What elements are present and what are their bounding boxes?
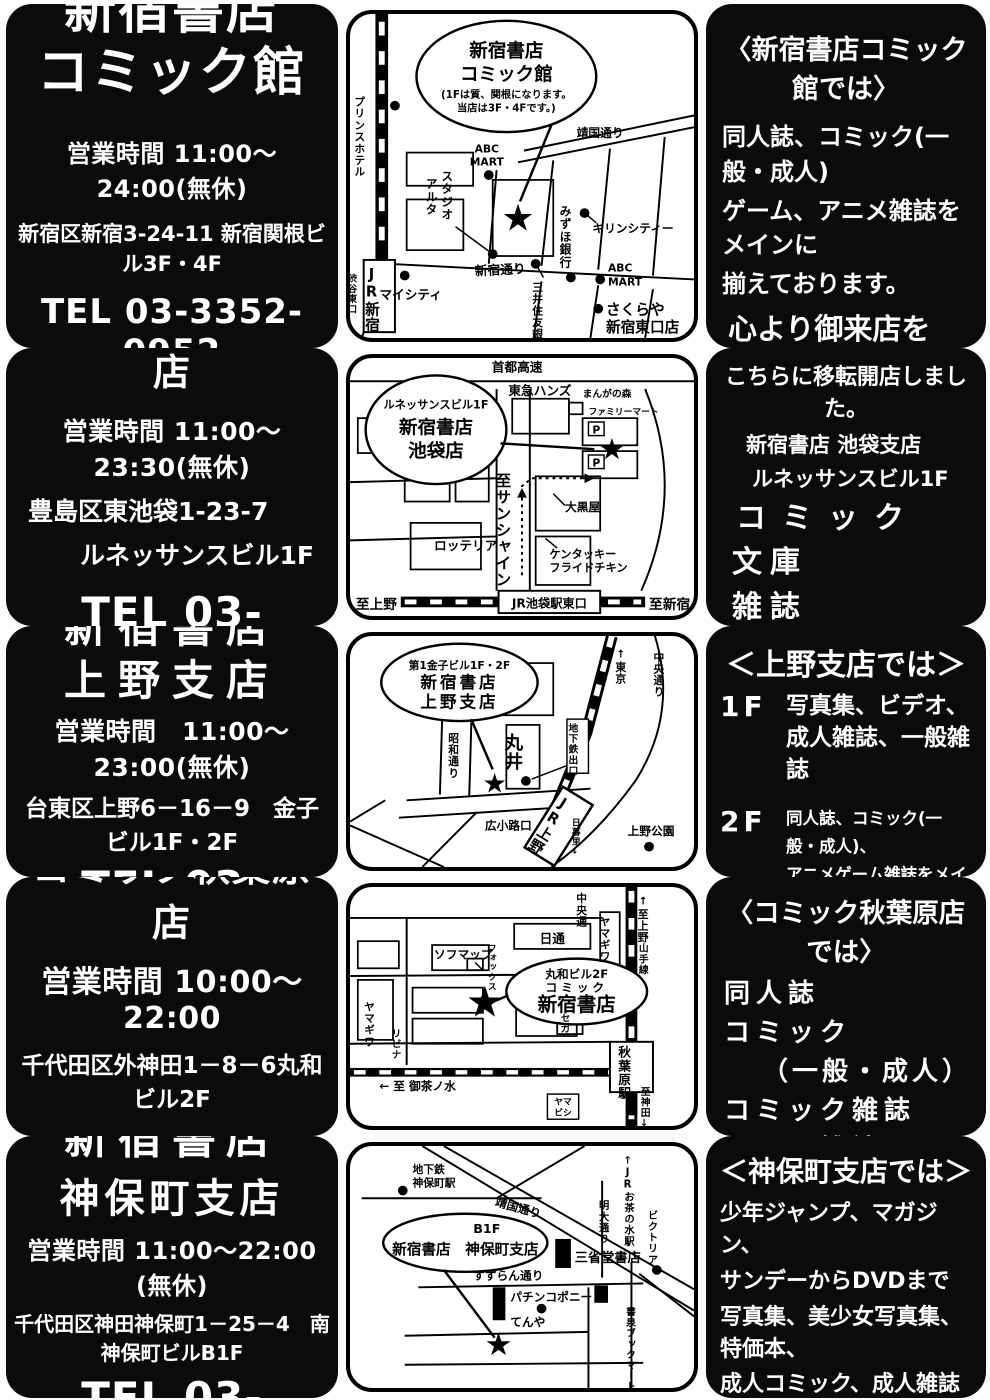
map-label-shibuya-east-exit: 渋谷東口 — [350, 273, 357, 315]
poi-dot — [595, 275, 605, 285]
store-tel: TEL03－5294－3222 — [14, 1124, 330, 1136]
map-panel-jimbocho: 地下鉄 神保町駅 靖国通り ↑JRお茶の水駅 明大通り ビクトリア B1F 新宿… — [338, 1136, 706, 1398]
poi-dot — [398, 1186, 408, 1196]
shinjuku-map: 新宿書店 コミック館 (1Fは質、関根になります。 当店は3F・4Fです。) ★… — [350, 14, 694, 338]
notice-line: ルネッサンスビル1F — [718, 464, 974, 494]
notice-line: 写真集、美少女写真集、特価本、 — [720, 1302, 972, 1366]
store-card-ueno: 1F→写真集大充実! 2F→コミックコーナー! 新宿書店 上野支店 営業時間 1… — [6, 626, 338, 877]
floor-description: 写真集、ビデオ、 成人雑誌、一般雑誌 — [786, 690, 972, 787]
map-label-sakuraya: さくらや — [606, 302, 665, 319]
station-stub — [628, 1092, 638, 1115]
map-label-abc-mart: ABC — [475, 143, 500, 156]
map-label-sega: セガ — [558, 1012, 570, 1034]
railway — [375, 14, 388, 260]
map-label-to-nippori: 日暮里↓ — [570, 817, 581, 857]
pointer-line — [456, 227, 489, 251]
map-label-showa-dori: 昭和通り — [447, 733, 460, 779]
jr-ueno-station: JR上野 — [524, 787, 593, 867]
balloon-line: (1Fは質、関根になります。 — [441, 88, 572, 101]
store-name: 新宿書店 池袋支店 — [14, 348, 330, 396]
notice-heading: 〈新宿書店コミック館では〉 — [722, 28, 970, 106]
store-name-line2: 上野支店 — [14, 655, 330, 708]
map-label-familymart: ファミリーマート — [588, 406, 658, 417]
map-label-jr-shinjuku: JR新宿 — [363, 266, 380, 333]
map-label-sofmap: ソフマップ — [434, 948, 493, 962]
poi-dot — [593, 304, 603, 314]
store-name: 新宿書店 コミック秋葉原店 — [14, 877, 330, 947]
map-label-shinjuku-dori: 新宿通り — [474, 261, 526, 279]
notice-line: 少年ジャンプ、マガジン、 — [720, 1198, 972, 1262]
store-address: 千代田区神田神保町1－25－4 南神保町ビルB1F — [14, 1308, 330, 1366]
floor-label: 1F — [720, 690, 776, 723]
store-location-star-icon: ★ — [501, 197, 534, 240]
map-panel-shinjuku: 新宿書店 コミック館 (1Fは質、関根になります。 当店は3F・4Fです。) ★… — [338, 4, 706, 348]
map-label-studio-alta: スタジオ — [440, 170, 454, 221]
map-label-nittsu: 日通 — [540, 931, 566, 946]
poi-dot — [566, 273, 576, 283]
pointer-line — [553, 494, 565, 506]
map-label-victoria: ビクトリア — [645, 1209, 657, 1266]
map-label-jr-ochanomizu: ↑JRお茶の水駅 — [622, 1156, 635, 1247]
floor-2-row: 2F 同人誌、コミック(一般・成人)、 アニメゲーム雑誌をメインに置いています。 — [720, 805, 972, 877]
notice-card-comic-kan: 〈新宿書店コミック館では〉 同人誌、コミック(一般・成人) ゲーム、アニメ雑誌を… — [706, 4, 986, 348]
balloon-line: 当店は3F・4Fです。) — [457, 102, 556, 115]
store-tel: TEL 03-3839-5340 — [14, 862, 330, 877]
ikebukuro-map: 首都高速 東急ハンズ まんがの森 ファミリーマート P P ★ ルネッサンスビル… — [350, 358, 694, 616]
poi-dot — [488, 249, 498, 259]
pointer-line — [475, 962, 483, 970]
map-label-kfc: フライドチキン — [549, 561, 627, 574]
store-hours: 営業時間 11:00～23:00(無休) — [14, 712, 330, 784]
store-address: ルネッサンスビル1F — [14, 536, 330, 572]
store-card-ikebukuro: 新宿書店 池袋支店 営業時間 11:00～23:30(無休) 豊島区東池袋1-2… — [6, 348, 338, 626]
store-location-star-icon: ★ — [482, 769, 507, 800]
roads — [362, 1146, 694, 1388]
map-label-manga-no-mori: まんがの森 — [583, 387, 632, 400]
map-label-ueno-park: 上野公園 — [628, 824, 675, 838]
notice-card-akihabara: 〈コミック秋葉原店では〉 同人誌 コミック （一般・成人） コミック雑誌 アニメ… — [706, 877, 986, 1136]
store-hours: 営業時間 11:00～22:00 (無休) — [14, 1231, 330, 1301]
map-label-mizuho-bank: みずほ銀行 — [558, 205, 572, 268]
notice-heading: ＜上野支店では＞ — [720, 640, 972, 684]
map-label-chuo-dori: 中央通 — [575, 892, 588, 927]
store-tel: TEL 03-3352-0952 — [14, 292, 330, 348]
notice-heading: 〈コミック秋葉原店では〉 — [720, 891, 972, 969]
balloon-line: ルネッサンスビル1F — [383, 397, 488, 411]
map-panel-akihabara: 中央通 ヤマギワ ↑至上野 山手線 日通 ソフマップ フォックス 丸和ビル2F … — [338, 877, 706, 1136]
floor-line: 同人誌、コミック(一般・成人)、 — [786, 805, 972, 861]
notice-line: 成人コミック、成人雑誌を — [720, 1369, 972, 1398]
map-label-kirin-city: キリンシティー — [592, 222, 673, 236]
store-address: 新宿区新宿3-24-11 新宿関根ビル3F・4F — [14, 218, 330, 278]
notice-heading: ＜神保町支店では＞ — [720, 1150, 972, 1190]
map-label-livina: リビナ — [389, 1028, 401, 1060]
map-panel-ikebukuro: 首都高速 東急ハンズ まんがの森 ファミリーマート P P ★ ルネッサンスビル… — [338, 348, 706, 626]
store-hours: 営業時間 11:00～24:00(無休) — [14, 134, 330, 204]
map-label-to-ochanomizu: ← 至 御茶ノ水 — [379, 1079, 456, 1093]
poi-dot — [652, 1265, 662, 1275]
notice-item: 同人誌 — [720, 977, 972, 1012]
map-label-abc-mart: MART — [470, 155, 505, 168]
store-tel: TEL 03-5391-6231 — [14, 588, 330, 626]
map-label-sakuraya: 新宿東口店 — [606, 318, 680, 336]
store-hours: 営業時間 10:00～22:00 — [14, 957, 330, 1036]
balloon-line: 第1金子ビル1F・2F — [409, 659, 511, 672]
map-label-shuto-expressway: 首都高速 — [492, 360, 543, 375]
floor-label: 2F — [720, 805, 776, 838]
map-label-mitsui-bank: 三井住友銀行 — [531, 281, 544, 338]
map-label-to-shinjuku: 至新宿 — [649, 596, 690, 613]
map-label-tenya: てんや — [510, 1315, 545, 1329]
store-card-comic-kan: 新宿書店 コミック館 営業時間 11:00～24:00(無休) 新宿区新宿3-2… — [6, 4, 338, 348]
store-card-akihabara: 新宿書店 コミック秋葉原店 営業時間 10:00～22:00 千代田区外神田1－… — [6, 877, 338, 1136]
map-label-yamanote-line: 山手線 — [637, 942, 649, 975]
balloon-pointer — [471, 719, 493, 769]
map-label-yamabishi: ビシ — [554, 1106, 572, 1118]
notice-card-jimbocho: ＜神保町支店では＞ 少年ジャンプ、マガジン、 サンデーからDVDまで 写真集、美… — [706, 1136, 986, 1398]
building-solid — [594, 1285, 608, 1302]
map-label-shosen-bookmart: 書泉ブックマート — [624, 1305, 637, 1388]
map-label-abc-mart-2: ABC — [608, 262, 633, 275]
store-tel: TEL 03-5259-3525 — [14, 1373, 330, 1398]
store-name: 新宿書店 神保町支店 — [14, 1136, 330, 1224]
map-label-yamagiwa: ヤマギワ — [599, 916, 612, 962]
balloon-pointer — [520, 125, 551, 201]
map-label-daikokuya: 大黒屋 — [565, 500, 600, 514]
akihabara-map: 中央通 ヤマギワ ↑至上野 山手線 日通 ソフマップ フォックス 丸和ビル2F … — [350, 887, 694, 1126]
map-label-tokyu-hands: 東急ハンズ — [508, 383, 572, 398]
ad-page: 新宿書店 コミック館 営業時間 11:00～24:00(無休) 新宿区新宿3-2… — [0, 0, 990, 1400]
map-label-to-sunshine: 至サンシャイン — [493, 472, 511, 588]
map-label-marui: 丸井 — [502, 733, 524, 772]
store-name-line2: コミック秋葉原店 — [14, 877, 330, 947]
balloon-line: 新宿書店 — [399, 417, 473, 439]
store-name-line1: 新宿書店 — [14, 1136, 330, 1166]
notice-line: ゲーム、アニメ雑誌をメインに — [722, 194, 970, 264]
map-label-sanseido: 三省堂書店 — [575, 1249, 641, 1266]
map-label-yamabishi: ヤマ — [554, 1097, 572, 1108]
map-label-yamagiwa-2: ヤマギワ — [363, 1001, 376, 1047]
balloon-line: 上野支店 — [420, 692, 498, 712]
notice-item: 文庫 — [718, 543, 974, 584]
map-label-kfc: ケンタッキー — [549, 547, 616, 561]
notice-item: （一般・成人） — [720, 1055, 972, 1090]
balloon-pointer — [501, 443, 595, 449]
store-location-star-icon: ★ — [599, 432, 625, 466]
store-card-jimbocho: 書泉ブックマート裏 新宿書店 神保町支店 営業時間 11:00～22:00 (無… — [6, 1136, 338, 1398]
poi-dot — [484, 170, 494, 180]
notice-item: コミック — [718, 499, 974, 540]
floor-1-row: 1F 写真集、ビデオ、 成人雑誌、一般雑誌 — [720, 690, 972, 787]
poi-dot — [390, 101, 400, 111]
balloon-line: B1F — [473, 1221, 500, 1236]
poi-dot — [537, 1304, 547, 1314]
balloon-line: コミック館 — [460, 63, 553, 85]
store-location-star-icon: ★ — [466, 978, 505, 1028]
floor-line: 写真集、ビデオ、 — [786, 690, 972, 722]
notice-closing: 心より御来店を — [722, 306, 970, 348]
store-name: 新宿書店 上野支店 — [14, 626, 330, 707]
poi-dot — [400, 271, 410, 281]
notice-card-ikebukuro: こちらに移転開店しました。 新宿書店 池袋支店 ルネッサンスビル1F コミック … — [706, 348, 986, 626]
balloon-line: 新宿書店 神保町支店 — [392, 1240, 539, 1258]
map-label-subway-exit: 地下鉄出口 — [566, 722, 578, 777]
notice-line: 新宿書店 池袋支店 — [718, 430, 974, 460]
balloon-line: 新宿書店 — [420, 672, 498, 692]
notice-line: こちらに移転開店しました。 — [718, 362, 974, 426]
map-label-lotteria: ロッテリア — [434, 538, 498, 553]
store-address: 豊島区東池袋1-23-7 — [14, 492, 330, 528]
notice-item: コミック雑誌 — [720, 1094, 972, 1129]
store-name: 新宿書店 コミック館 — [14, 4, 330, 104]
map-label-pachinko-pony: パチンコポニー — [510, 1290, 592, 1304]
store-name-line1: 新宿書店 — [14, 4, 330, 42]
ueno-map: 第1金子ビル1F・2F 新宿書店 上野支店 ★ ↑東京 中央通り 地下鉄出口 丸… — [350, 636, 694, 867]
map-label-mycity: マイシティ — [379, 287, 442, 302]
notice-item: コミック — [720, 1016, 972, 1051]
pointer-line — [532, 766, 567, 780]
balloon-line: 新宿書店 — [538, 993, 616, 1016]
notice-line: 揃えております。 — [722, 267, 970, 302]
store-name-line2: 神保町支店 — [14, 1166, 330, 1224]
notice-line: サンデーからDVDまで — [720, 1266, 972, 1298]
map-label-meidai-dori: 明大通り — [597, 1200, 609, 1245]
balloon-line: 新宿書店 — [469, 40, 543, 62]
floor-line: 成人雑誌、一般雑誌 — [786, 722, 972, 786]
railway-horizontal — [350, 1068, 626, 1077]
store-location-star-icon: ★ — [485, 1327, 513, 1363]
poi-dot — [521, 776, 531, 786]
notice-card-ueno: ＜上野支店では＞ 1F 写真集、ビデオ、 成人雑誌、一般雑誌 2F 同人誌、コミ… — [706, 626, 986, 877]
map-label-abc-mart-2: MART — [608, 275, 643, 288]
store-name-line1: 新宿書店 — [14, 626, 330, 655]
map-label-subway-jimbocho: 地下鉄 — [413, 1163, 446, 1176]
map-label-yasukuni-dori: 靖国通り — [577, 126, 624, 140]
map-label-akihabara-station: 秋葉原駅 — [616, 1045, 631, 1101]
map-label-to-kanda: 至神田↓ — [639, 1086, 651, 1126]
jimbocho-map: 地下鉄 神保町駅 靖国通り ↑JRお茶の水駅 明大通り ビクトリア B1F 新宿… — [350, 1146, 694, 1388]
map-panel-ueno: 第1金子ビル1F・2F 新宿書店 上野支店 ★ ↑東京 中央通り 地下鉄出口 丸… — [338, 626, 706, 877]
notice-item: 雑誌 — [718, 588, 974, 626]
store-address: 台東区上野6－16－9 金子ビル1F・2F — [14, 789, 330, 857]
floor-description: 同人誌、コミック(一般・成人)、 アニメゲーム雑誌をメインに置いています。 — [786, 805, 972, 877]
floor-line: アニメゲーム雑誌をメインに置いています。 — [786, 861, 972, 877]
building-solid — [493, 1287, 506, 1320]
map-label-prince-hotel: プリンスホテル — [353, 95, 366, 178]
balloon-line: 池袋店 — [408, 440, 464, 462]
map-label-to-tokyo: ↑東京 — [614, 648, 627, 685]
notice-line: 同人誌、コミック(一般・成人) — [722, 120, 970, 190]
balloon-line: 丸和ビル2F — [544, 967, 608, 981]
map-label-studio-alta: アルタ — [424, 178, 438, 216]
map-label-subway-jimbocho: 神保町駅 — [413, 1177, 456, 1190]
map-label-hirokoji-exit: 広小路口 — [485, 818, 532, 832]
map-label-to-ueno: ↑至上野 — [637, 895, 650, 944]
map-label-suzuran-dori: すずらん通り — [473, 1269, 543, 1283]
map-label-to-ueno: 至上野 — [356, 597, 397, 613]
pointer-line — [545, 538, 557, 548]
store-name-line2: コミック館 — [14, 42, 330, 104]
building-solid — [555, 1239, 571, 1268]
map-label-jr-ikebukuro-east: JR池袋駅東口 — [511, 595, 587, 610]
map-label-chuo-dori: 中央通り — [652, 651, 665, 698]
store-address: 千代田区外神田1－8－6丸和ビル2F — [14, 1046, 330, 1114]
store-hours: 営業時間 11:00～23:30(無休) — [14, 412, 330, 484]
poi-dot — [644, 842, 654, 852]
